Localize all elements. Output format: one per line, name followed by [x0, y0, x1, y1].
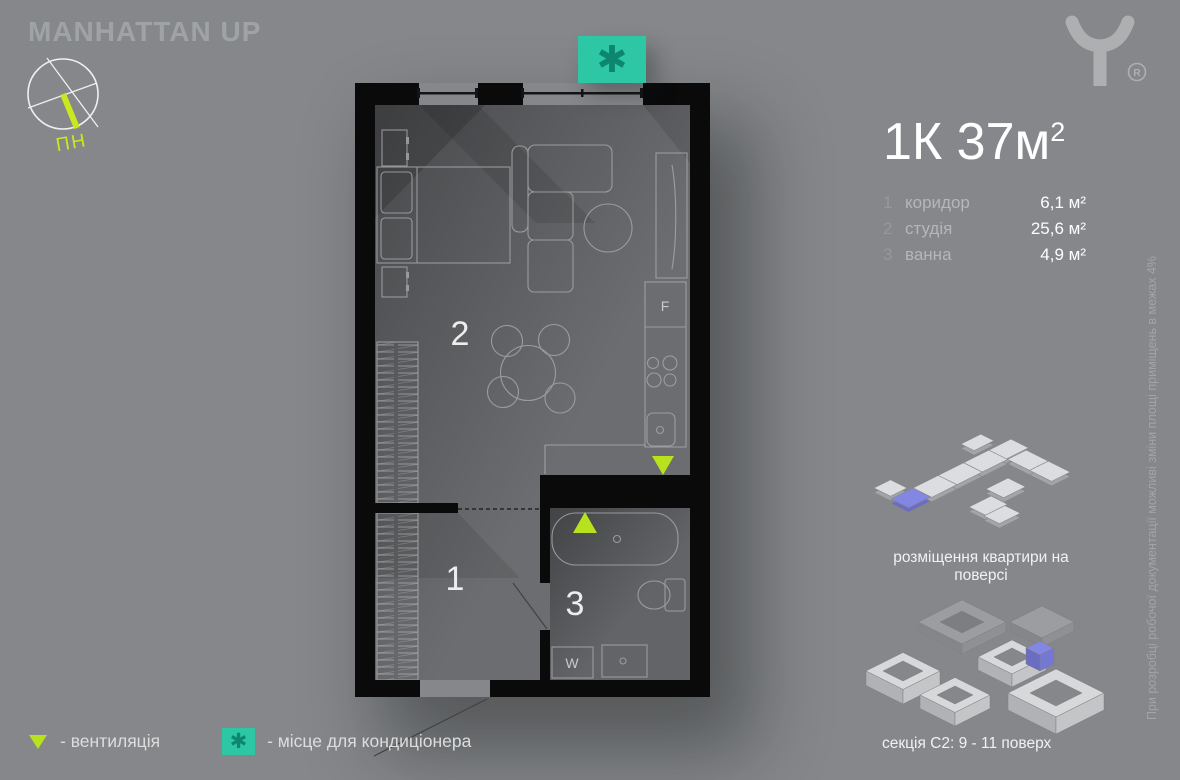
label-washer: W — [565, 655, 579, 671]
company-logo-icon: R — [1048, 14, 1163, 94]
compass-icon: ПН — [18, 48, 118, 156]
flat-title-main: 1К 37м — [883, 113, 1050, 171]
legend-vent-label: - вентиляція — [60, 731, 160, 752]
room-name: ванна — [905, 242, 1040, 268]
asterisk-icon: ✱ — [230, 731, 248, 752]
room-area: 4,9 м² — [1040, 242, 1086, 268]
room-row-bath: 3 ванна 4,9 м² — [883, 242, 1086, 268]
legend: - вентиляція ✱ - місце для кондиціонера — [28, 728, 471, 755]
vent-triangle-icon — [28, 734, 48, 750]
label-fridge: F — [661, 298, 670, 314]
flat-title-sup: 2 — [1050, 117, 1065, 147]
window-symbols — [417, 88, 643, 98]
brand-title: MANHATTAN UP — [28, 16, 261, 48]
legend-ac-label: - місце для кондиціонера — [267, 731, 471, 752]
label-bath: 3 — [566, 585, 585, 623]
room-name: студія — [905, 216, 1031, 242]
section-caption: секція С2: 9 - 11 поверх — [882, 735, 1051, 753]
room-number: 3 — [883, 242, 905, 268]
room-name: коридор — [905, 190, 1040, 216]
compass-north-label: ПН — [54, 130, 89, 156]
ac-square-icon: ✱ — [222, 728, 255, 755]
ac-place-marker: ✱ — [578, 36, 646, 83]
floor-placement-diagram — [866, 404, 1096, 549]
asterisk-icon: ✱ — [596, 41, 627, 78]
room-area: 6,1 м² — [1040, 190, 1086, 216]
floor-plan: 2 1 3 F W — [355, 83, 710, 773]
flat-title: 1К 37м2 — [883, 112, 1065, 172]
label-corridor: 1 — [446, 560, 465, 598]
registered-mark: R — [1133, 68, 1141, 79]
room-number: 1 — [883, 190, 905, 216]
room-number: 2 — [883, 216, 905, 242]
section-location-diagram — [858, 576, 1108, 736]
room-row-studio: 2 студія 25,6 м² — [883, 216, 1086, 242]
room-area: 25,6 м² — [1031, 216, 1086, 242]
room-list: 1 коридор 6,1 м² 2 студія 25,6 м² 3 ванн… — [883, 190, 1086, 268]
room-row-corridor: 1 коридор 6,1 м² — [883, 190, 1086, 216]
floor-plan-poster: MANHATTAN UP ПН R 1К 37м2 1 коридор 6,1 … — [0, 0, 1180, 780]
label-studio: 2 — [451, 315, 470, 353]
disclaimer-text: При розробці робочої документації можлив… — [1145, 256, 1159, 720]
